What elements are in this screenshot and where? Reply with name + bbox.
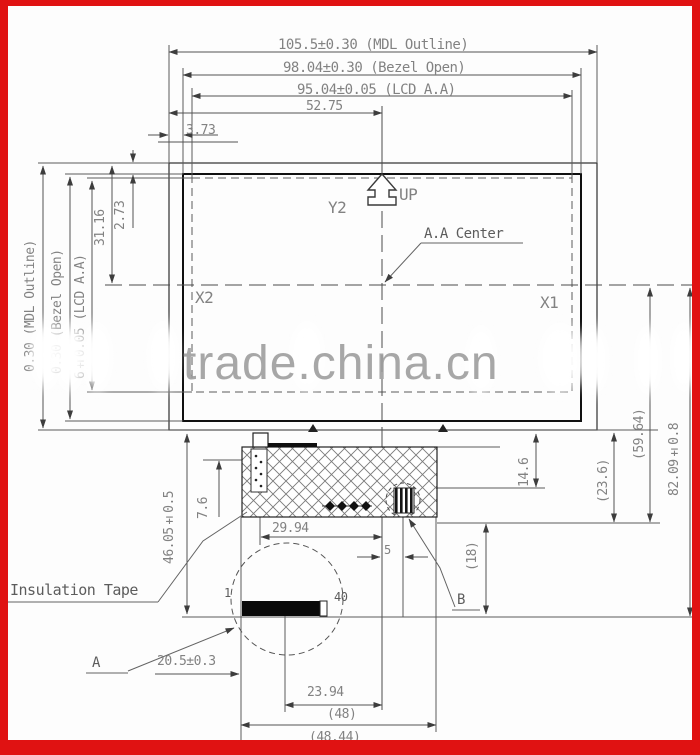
up-arrow-icon <box>368 174 396 205</box>
dim-fpc-left: 29.94 <box>272 522 309 535</box>
axis-label-x2: X2 <box>195 290 213 306</box>
up-label: UP <box>399 187 417 203</box>
frame-top <box>0 0 700 6</box>
frame-bottom <box>0 740 700 755</box>
axis-label-x1: X1 <box>540 295 558 311</box>
blur-patch <box>144 314 182 398</box>
pin-row <box>242 601 320 616</box>
insulation-tape-label: Insulation Tape <box>10 583 138 598</box>
dim-component-offset: 5 <box>384 544 391 556</box>
blur-patch <box>574 318 612 402</box>
detail-a-label: A <box>92 656 100 670</box>
dim-fpc-height: 14.6 <box>518 447 531 487</box>
pin-40-label: 40 <box>334 591 347 603</box>
dim-mdl-outline-width: 105.5±0.30 (MDL Outline) <box>278 38 468 52</box>
dotted-component <box>251 449 267 492</box>
aa-center-label: A.A Center <box>424 227 503 241</box>
dim-bezel-gap: 2.73 <box>114 186 127 230</box>
connector-detail <box>231 543 343 655</box>
dim-pin-left: 20.5±0.3 <box>157 655 216 668</box>
dim-tail-depth: (23.6) <box>597 451 610 503</box>
dim-lcd-aa-width: 95.04±0.05 (LCD A.A) <box>297 83 456 97</box>
dim-edge-offset: 3.73 <box>186 124 215 137</box>
attach-mark-left <box>308 424 318 432</box>
blur-patch <box>632 318 664 402</box>
dim-tail-total: (59.64) <box>633 398 646 460</box>
dim-center-offset: 52.75 <box>306 100 343 113</box>
lcd-module-mechanical-drawing: 105.5±0.30 (MDL Outline) 98.04±0.30 (Bez… <box>0 0 700 755</box>
detail-b-label: B <box>457 593 465 607</box>
axis-label-y2: Y2 <box>328 200 346 216</box>
dim-top-to-center: 31.16 <box>94 194 107 246</box>
dim-bezel-open-width: 98.04±0.30 (Bezel Open) <box>283 61 465 75</box>
dim-pin-row: 23.94 <box>307 686 344 699</box>
dim-center-to-pin: 82.09±0.8 <box>668 418 681 496</box>
pin-1-label: 1 <box>224 587 231 599</box>
blur-patch <box>78 315 116 399</box>
frame-right <box>692 0 700 755</box>
dim-connector: (18) <box>466 537 479 571</box>
dim-fpc-width: (48) <box>327 708 356 721</box>
frame-left <box>0 0 8 755</box>
fpc-area <box>242 424 448 517</box>
watermark: trade.china.cn <box>183 336 499 391</box>
attach-mark-right <box>438 424 448 432</box>
dim-tape-height: 7.6 <box>197 487 210 519</box>
dim-module-to-pin: 46.05±0.5 <box>163 478 176 564</box>
